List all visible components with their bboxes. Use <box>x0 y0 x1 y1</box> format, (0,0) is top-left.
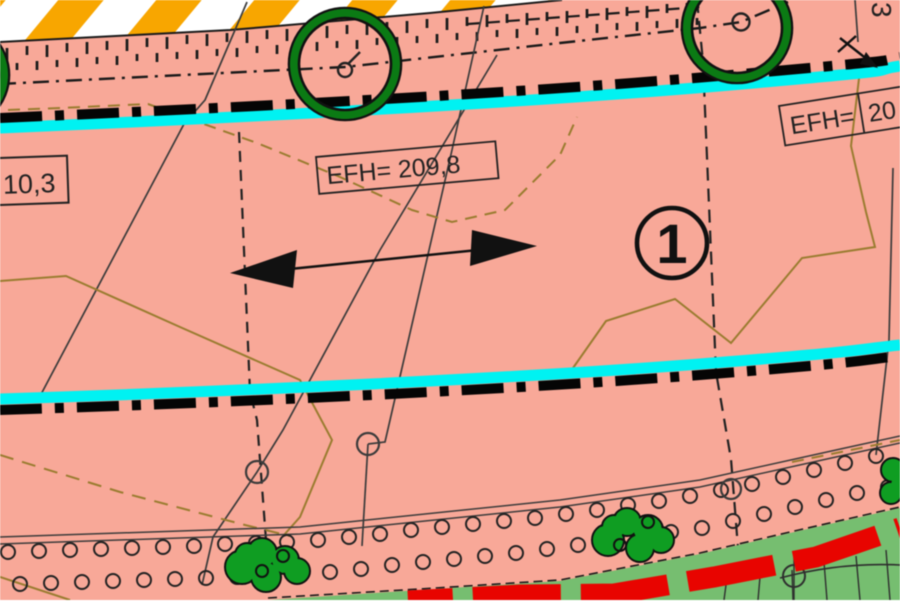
svg-text:3: 3 <box>895 180 900 196</box>
svg-text:3: 3 <box>866 2 897 18</box>
svg-text:1: 1 <box>656 212 687 275</box>
svg-text:10,3: 10,3 <box>2 168 56 200</box>
svg-text:20: 20 <box>866 96 898 128</box>
